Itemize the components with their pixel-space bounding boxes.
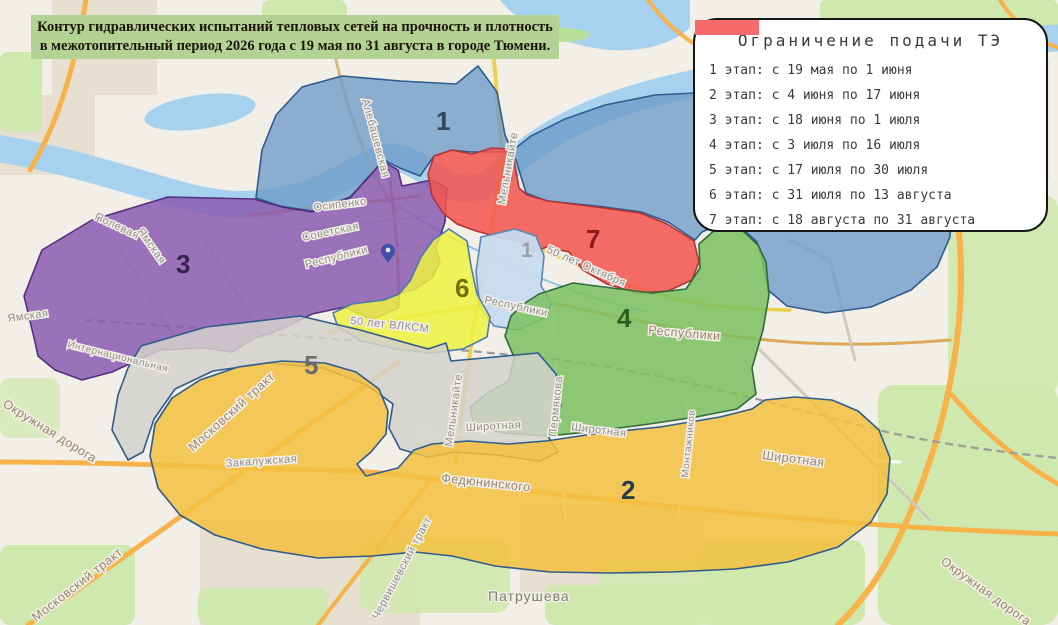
legend-item-stage-5: 5 этап: с 17 июля по 30 июля [695,158,1046,183]
legend-item-stage-1: 1 этап: с 19 мая по 1 июня [695,58,1046,83]
map-title: Контур гидравлических испытаний тепловых… [31,15,559,59]
zone-number-7: 7 [586,224,600,254]
legend-item-stage-6: 6 этап: с 31 июля по 13 августа [695,183,1046,208]
zone-number-4: 4 [617,303,632,333]
legend-label-stage-4: 4 этап: с 3 июля по 16 июля [709,138,920,153]
zone-number-1-inner: 1 [521,239,533,262]
legend-item-stage-4: 4 этап: с 3 июля по 16 июля [695,133,1046,158]
zone-number-2: 2 [621,475,635,505]
legend-label-stage-5: 5 этап: с 17 июля по 30 июля [709,163,928,178]
legend-label-stage-3: 3 этап: с 18 июня по 1 июля [709,113,920,128]
zone-number-3: 3 [176,249,190,279]
legend-item-stage-7: 7 этап: с 18 августа по 31 августа [695,208,1046,233]
legend-label-stage-7: 7 этап: с 18 августа по 31 августа [709,213,975,228]
map-screenshot: Алебашевская Мельникайте Мельникайте Оси… [0,0,1058,625]
place-label-patrusheva: Патрушева [488,588,570,604]
legend-item-stage-3: 3 этап: с 18 июня по 1 июля [695,108,1046,133]
legend-label-stage-2: 2 этап: с 4 июня по 17 июня [709,88,920,103]
legend-label-stage-6: 6 этап: с 31 июля по 13 августа [709,188,952,203]
legend-panel: Ограничение подачи ТЭ 1 этап: с 19 мая п… [693,18,1048,232]
zone-number-5: 5 [304,350,318,380]
map-title-line2: в межотопительный период 2026 года с 19 … [37,37,553,56]
legend-label-stage-1: 1 этап: с 19 мая по 1 июня [709,63,913,78]
legend-item-stage-2: 2 этап: с 4 июня по 17 июня [695,83,1046,108]
legend-swatch-stage-7 [695,20,759,35]
zone-number-6: 6 [455,273,469,303]
map-title-line1: Контур гидравлических испытаний тепловых… [37,18,553,37]
zone-number-1: 1 [436,106,450,136]
legend-rows: 1 этап: с 19 мая по 1 июня 2 этап: с 4 и… [695,58,1046,233]
